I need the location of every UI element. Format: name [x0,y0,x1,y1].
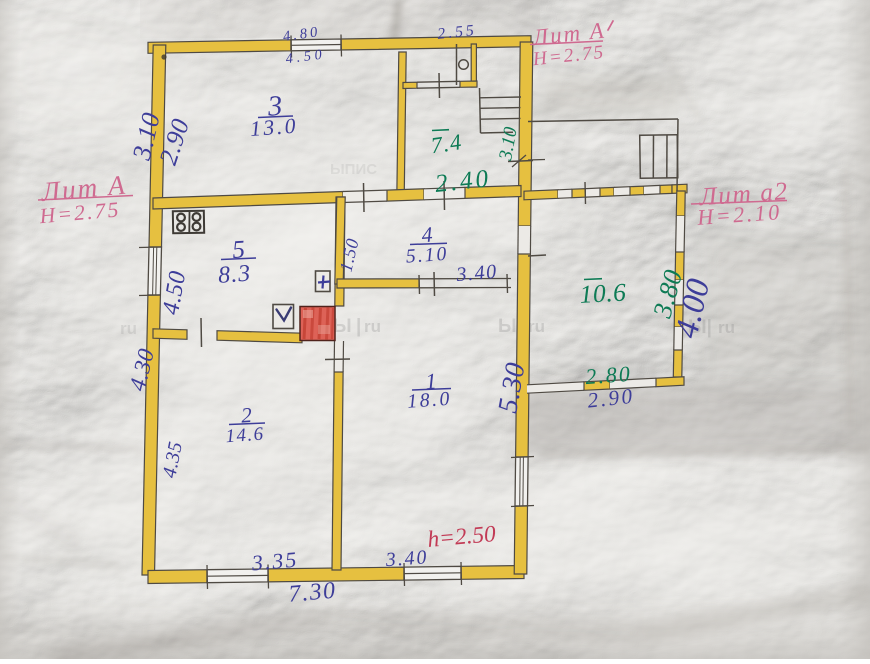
svg-text:ru: ru [718,318,735,337]
svg-text:|: | [356,316,361,337]
svg-text:14.6: 14.6 [225,424,265,448]
svg-text:2.40: 2.40 [434,164,493,198]
svg-text:3.35: 3.35 [250,547,299,576]
svg-text:ru: ru [120,319,137,338]
svg-text:7.30: 7.30 [288,578,338,608]
svg-text:ЫПИС: ЫПИС [330,161,377,178]
svg-text:5.10: 5.10 [405,243,449,268]
svg-text:Ы: Ы [333,316,352,337]
svg-text:3.40: 3.40 [455,261,499,287]
svg-text:7.4: 7.4 [429,129,464,158]
svg-text:18.0: 18.0 [407,388,453,413]
svg-text:5: 5 [231,236,245,264]
svg-text:ru: ru [528,317,545,336]
svg-text:10.6: 10.6 [579,277,627,308]
svg-text:3.40: 3.40 [384,546,429,571]
svg-text:13.0: 13.0 [249,114,298,141]
svg-text:2.80: 2.80 [584,361,632,389]
svg-text:ru: ru [364,317,381,336]
svg-text:8.3: 8.3 [217,261,252,289]
